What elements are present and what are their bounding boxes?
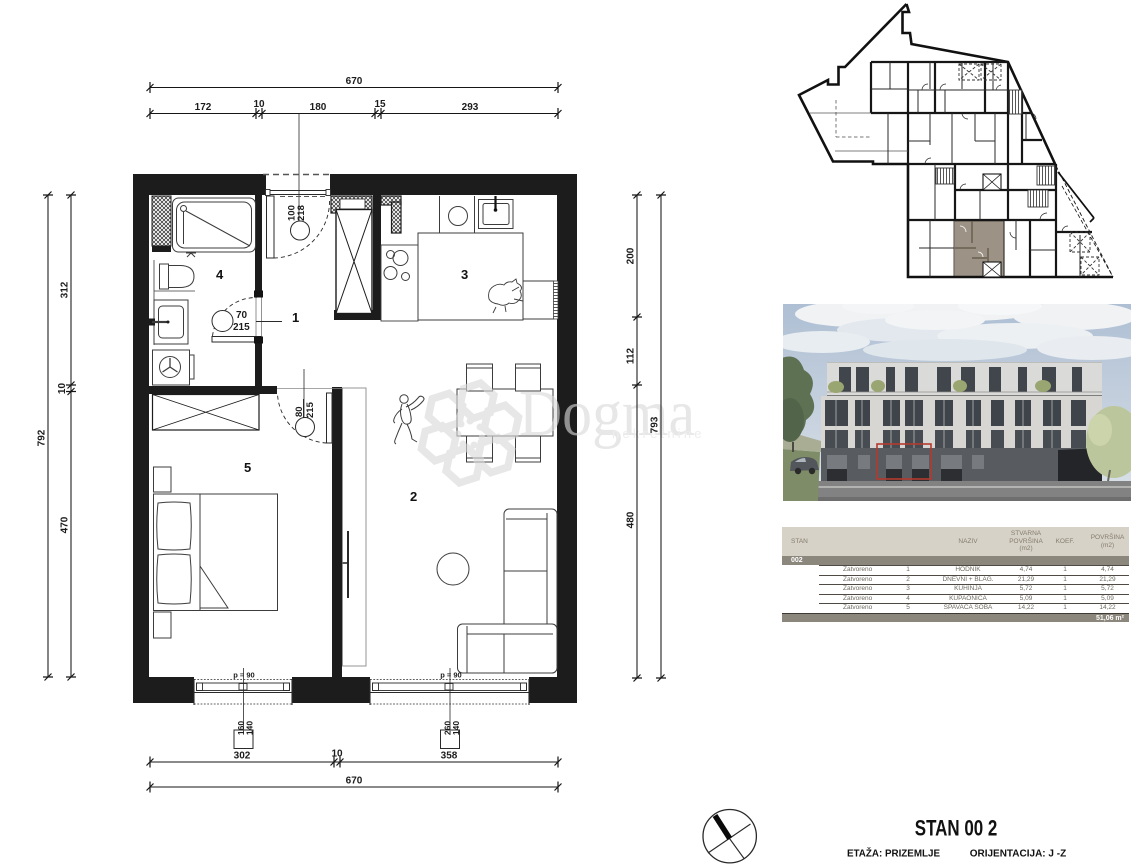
svg-text:10: 10 bbox=[331, 749, 343, 760]
svg-text:215: 215 bbox=[233, 322, 250, 333]
svg-text:p = 90: p = 90 bbox=[233, 671, 254, 680]
svg-text:140: 140 bbox=[451, 721, 461, 735]
svg-text:470: 470 bbox=[60, 516, 71, 533]
svg-text:ORIJENTACIJA: J -Z: ORIJENTACIJA: J -Z bbox=[970, 848, 1067, 860]
svg-text:1: 1 bbox=[292, 310, 299, 325]
svg-text:10: 10 bbox=[253, 99, 265, 110]
svg-text:140: 140 bbox=[245, 721, 255, 735]
svg-text:218: 218 bbox=[296, 205, 307, 221]
svg-text:70: 70 bbox=[236, 310, 248, 321]
svg-text:2: 2 bbox=[410, 489, 417, 504]
svg-text:STAN 00 2: STAN 00 2 bbox=[915, 816, 998, 841]
svg-text:302: 302 bbox=[234, 751, 251, 762]
svg-text:793: 793 bbox=[650, 416, 661, 433]
svg-text:4: 4 bbox=[216, 267, 224, 282]
svg-text:15: 15 bbox=[374, 99, 386, 110]
svg-text:180: 180 bbox=[310, 102, 327, 113]
svg-text:670: 670 bbox=[346, 76, 363, 87]
svg-text:172: 172 bbox=[195, 102, 212, 113]
svg-text:312: 312 bbox=[60, 281, 71, 298]
svg-text:10: 10 bbox=[57, 383, 68, 395]
svg-text:5: 5 bbox=[244, 460, 251, 475]
svg-text:670: 670 bbox=[346, 776, 363, 787]
svg-text:p = 90: p = 90 bbox=[440, 671, 461, 680]
svg-text:112: 112 bbox=[626, 347, 637, 364]
svg-text:358: 358 bbox=[441, 751, 458, 762]
svg-text:ETAŽA: PRIZEMLJE: ETAŽA: PRIZEMLJE bbox=[847, 847, 940, 860]
svg-text:200: 200 bbox=[626, 247, 637, 264]
svg-text:215: 215 bbox=[305, 401, 316, 418]
svg-text:792: 792 bbox=[37, 429, 48, 446]
svg-text:480: 480 bbox=[626, 511, 637, 528]
svg-text:293: 293 bbox=[462, 102, 479, 113]
svg-text:3: 3 bbox=[461, 267, 468, 282]
